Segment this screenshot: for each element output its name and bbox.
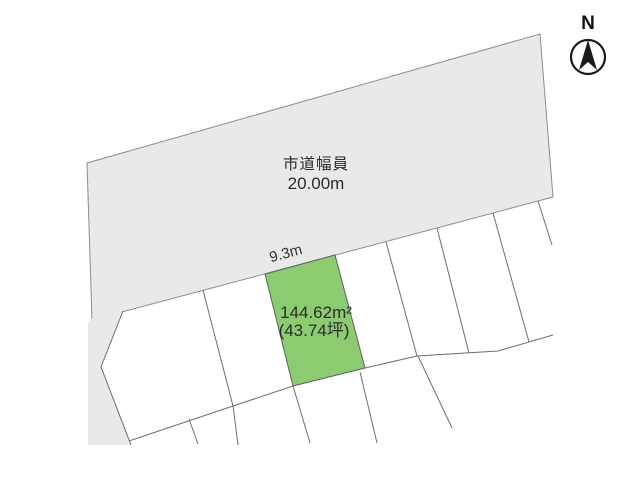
parcel-divider bbox=[203, 290, 238, 445]
parcel-divider bbox=[538, 201, 552, 245]
parcel-row-boundary bbox=[365, 335, 553, 368]
parcel-divider bbox=[437, 228, 469, 353]
parcel-divider bbox=[493, 213, 529, 342]
road-width-label-line2: 20.00m bbox=[288, 174, 345, 193]
parcel-divider bbox=[293, 386, 310, 443]
parcel-row-boundary bbox=[129, 386, 293, 441]
lot-area-tsubo-label: (43.74坪) bbox=[279, 321, 350, 340]
lot-map-canvas: 市道幅員 20.00m 9.3m 144.62m² (43.74坪) N bbox=[0, 0, 640, 480]
road-width-label-line1: 市道幅員 bbox=[283, 155, 349, 173]
side-road-wedge bbox=[88, 311, 131, 445]
lot-area-m2-label: 144.62m² bbox=[280, 303, 352, 322]
north-compass: N bbox=[571, 13, 605, 74]
parcel-divider bbox=[386, 242, 417, 356]
parcel-divider bbox=[360, 372, 377, 443]
parcel-divider bbox=[189, 419, 198, 444]
north-arrow-icon bbox=[579, 40, 597, 70]
parcel-divider bbox=[418, 356, 452, 428]
north-label: N bbox=[581, 13, 595, 34]
